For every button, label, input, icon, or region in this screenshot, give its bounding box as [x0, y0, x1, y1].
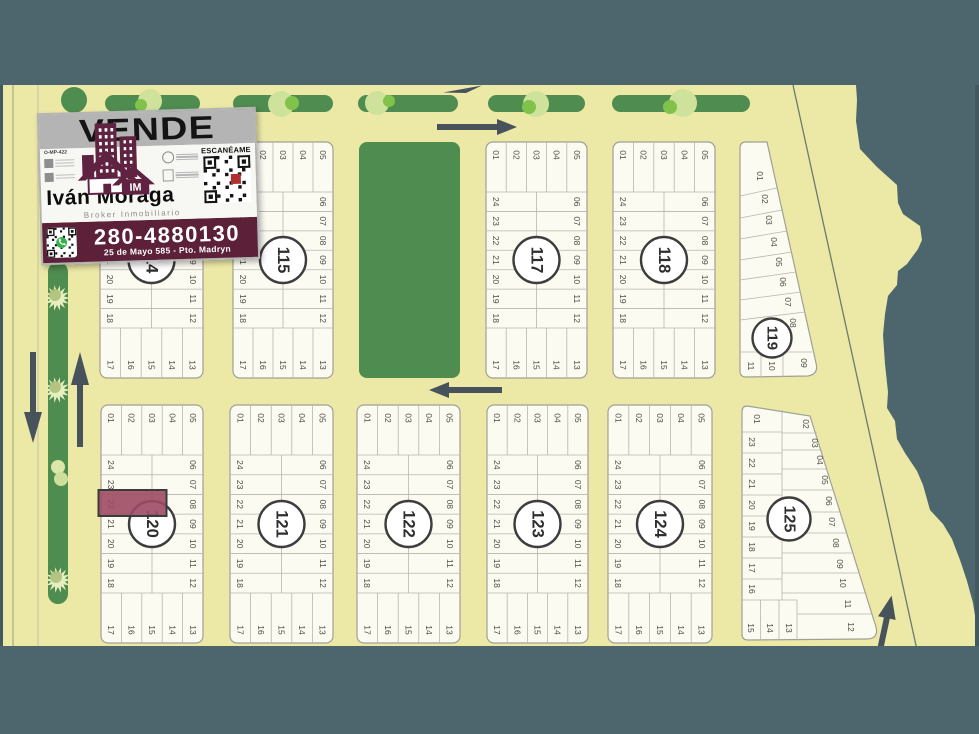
lot-number: 19 — [747, 521, 757, 531]
lot-number: 15 — [533, 625, 543, 635]
lot-number: 23 — [491, 216, 501, 226]
lot-number: 15 — [147, 360, 157, 370]
lot-number: 08 — [318, 236, 328, 246]
lot-number: 03 — [810, 438, 820, 448]
block-number: 121 — [273, 510, 291, 538]
lot-number: 23 — [235, 480, 245, 490]
lot-number: 21 — [235, 519, 245, 529]
block-118: 0117021603150414051324062307220821092010… — [613, 142, 715, 378]
lot-number: 15 — [278, 360, 288, 370]
lot-number: 17 — [618, 360, 628, 370]
lot-number: 06 — [318, 460, 328, 470]
lot-number: 14 — [167, 625, 177, 635]
lot-number: 23 — [492, 480, 502, 490]
lot-number: 18 — [105, 314, 115, 324]
whatsapp-qr-code — [46, 227, 77, 258]
block-122: 0117021603150414051324062307220821092010… — [357, 405, 460, 643]
lot-number: 13 — [445, 625, 455, 635]
lot-number: 13 — [188, 360, 198, 370]
lot-number: 10 — [318, 275, 328, 285]
lot-number: 03 — [659, 150, 669, 160]
lot-number: 22 — [492, 500, 502, 510]
lot-number: 09 — [445, 519, 455, 529]
lot-number: 09 — [572, 255, 582, 265]
lot-number: 17 — [105, 360, 115, 370]
lot-number: 10 — [188, 275, 198, 285]
lot-number: 18 — [492, 578, 502, 588]
lot-number: 09 — [318, 519, 328, 529]
lot-number: 22 — [747, 458, 757, 468]
hedge-tree — [383, 95, 395, 107]
block-number: 117 — [528, 247, 546, 274]
ad-banner: VENDE O-MP-422 IM — [37, 107, 260, 265]
lot-number: 10 — [445, 539, 455, 549]
lot-number: 05 — [188, 413, 198, 423]
traffic-arrow-left — [447, 387, 502, 393]
lot-number: 20 — [491, 275, 501, 285]
lot-number: 16 — [256, 625, 266, 635]
lot-number: 08 — [572, 236, 582, 246]
lot-number: 16 — [126, 360, 136, 370]
lot-number: 07 — [445, 480, 455, 490]
lot-number: 13 — [318, 625, 328, 635]
lot-number: 23 — [362, 480, 372, 490]
block-number: 125 — [781, 506, 798, 533]
agent-role: Broker Inmobiliario — [84, 208, 181, 220]
lot-number: 15 — [659, 360, 669, 370]
association-logo-icon — [44, 159, 53, 168]
cia-logo-icon — [162, 151, 174, 163]
logo-initials: IM — [129, 182, 141, 194]
lot-number: 09 — [799, 358, 809, 368]
lot-number: 08 — [831, 538, 841, 548]
lot-number: 23 — [106, 480, 116, 490]
lot-number: 11 — [572, 294, 582, 303]
lot-number: 19 — [491, 294, 501, 304]
association-logos-left — [44, 157, 75, 185]
lot-number: 05 — [318, 413, 328, 423]
lot-number: 19 — [613, 559, 623, 569]
lot-number: 15 — [277, 625, 287, 635]
lot-number: 20 — [238, 275, 248, 285]
lot-number: 21 — [747, 479, 757, 489]
lot-number: 16 — [258, 360, 268, 370]
ad-panel: O-MP-422 IM — [40, 143, 257, 223]
lot-number: 12 — [697, 578, 707, 588]
lot-number: 14 — [679, 360, 689, 370]
lot-number: 21 — [618, 255, 628, 265]
hedge-tree — [522, 100, 536, 114]
lot-number: 12 — [188, 314, 198, 324]
lot-number: 22 — [613, 500, 623, 510]
ref-code: O-MP-422 — [44, 149, 67, 156]
lot-number: 05 — [820, 475, 830, 485]
traffic-arrow-up — [77, 383, 83, 447]
lot-number: 10 — [697, 539, 707, 549]
lot-number: 06 — [824, 496, 834, 506]
contact-bar: 280-4880130 25 de Mayo 585 - Pto. Madryn — [42, 217, 258, 263]
lot-number: 23 — [747, 437, 757, 447]
lot-number: 21 — [362, 519, 372, 529]
lot-number: 13 — [573, 625, 583, 635]
lot-number: 14 — [167, 360, 177, 370]
lot-number: 14 — [553, 625, 563, 635]
lot-number: 19 — [618, 294, 628, 304]
lot-number: 18 — [238, 314, 248, 324]
lot-number: 02 — [383, 413, 393, 423]
lot-map-flyer: 0117021603150414051324062307220821092010… — [0, 0, 979, 734]
lot-number: 17 — [362, 625, 372, 635]
lot-number: 17 — [106, 625, 116, 635]
lot-number: 19 — [492, 559, 502, 569]
map-edge — [0, 85, 3, 646]
lot-number: 24 — [235, 460, 245, 470]
block-number: 118 — [655, 247, 673, 274]
association-logo-icon — [45, 172, 54, 181]
lot-number: 22 — [491, 236, 501, 246]
lot-number: 12 — [846, 622, 856, 632]
lot-number: 17 — [492, 625, 502, 635]
lot-number: 13 — [700, 360, 710, 370]
lot-number: 02 — [127, 413, 137, 423]
lot-number: 16 — [127, 625, 137, 635]
lot-number: 02 — [258, 150, 268, 160]
lot-number: 07 — [572, 216, 582, 226]
lot-number: 05 — [318, 150, 328, 160]
lot-number: 16 — [511, 360, 521, 370]
lot-number: 20 — [105, 275, 115, 285]
lot-number: 21 — [492, 519, 502, 529]
lot-number: 09 — [700, 255, 710, 265]
block-number: 123 — [529, 510, 547, 538]
lot-number: 13 — [318, 360, 328, 370]
lot-number: 21 — [491, 255, 501, 265]
lot-number: 15 — [404, 625, 414, 635]
lot-number: 06 — [445, 460, 455, 470]
lot-number: 03 — [655, 413, 665, 423]
lot-number: 20 — [362, 539, 372, 549]
lot-number: 01 — [618, 150, 628, 160]
lot-number: 19 — [106, 559, 116, 569]
lot-number: 02 — [256, 413, 266, 423]
traffic-arrow-down — [30, 352, 36, 414]
block-121: 0117021603150414051324062307220821092010… — [230, 405, 333, 643]
lot-number: 08 — [697, 500, 707, 510]
lot-number: 08 — [700, 236, 710, 246]
avenue-median — [48, 262, 68, 604]
lot-number: 12 — [188, 578, 198, 588]
lot-number: 03 — [532, 150, 542, 160]
block-number: 119 — [764, 326, 781, 350]
lot-number: 19 — [362, 559, 372, 569]
lot-number: 21 — [106, 519, 116, 529]
lot-number: 20 — [106, 539, 116, 549]
lot-number: 04 — [552, 150, 562, 160]
traffic-arrow-right — [437, 124, 497, 130]
lot-number: 10 — [318, 539, 328, 549]
block-number: 115 — [274, 247, 292, 274]
lot-number: 07 — [318, 480, 328, 490]
association-logos-center — [162, 151, 199, 188]
map-edge — [975, 85, 979, 646]
hedge-tree — [663, 100, 677, 114]
lot-number: 06 — [700, 197, 710, 207]
lot-number: 09 — [697, 519, 707, 529]
lot-number: 01 — [235, 413, 245, 423]
lot-number: 12 — [572, 314, 582, 324]
block-124: 0117021603150414051324062307220821092010… — [608, 405, 712, 643]
lot-number: 11 — [445, 559, 455, 568]
median-shrub — [49, 289, 61, 301]
lot-number: 17 — [491, 360, 501, 370]
lot-number: 16 — [639, 360, 649, 370]
lot-number: 05 — [700, 150, 710, 160]
lot-number: 12 — [318, 578, 328, 588]
lot-number: 05 — [445, 413, 455, 423]
lot-number: 02 — [512, 413, 522, 423]
scan-me-block: ESCANÉAME — [200, 145, 254, 204]
lot-number: 04 — [815, 455, 825, 465]
lot-number: 24 — [106, 460, 116, 470]
lot-number: 11 — [188, 559, 198, 568]
lot-number: 02 — [760, 194, 770, 204]
lot-number: 19 — [105, 294, 115, 304]
lot-number: 02 — [639, 150, 649, 160]
lot-number: 14 — [424, 625, 434, 635]
lot-number: 09 — [573, 519, 583, 529]
lot-number: 11 — [700, 294, 710, 303]
lot-number: 11 — [318, 294, 328, 303]
lot-number: 24 — [491, 197, 501, 207]
lot-number: 07 — [783, 297, 793, 307]
lot-number: 24 — [618, 197, 628, 207]
lot-number: 04 — [553, 413, 563, 423]
lot-number: 21 — [613, 519, 623, 529]
lot-number: 18 — [613, 578, 623, 588]
lot-number: 18 — [618, 314, 628, 324]
lot-number: 13 — [784, 623, 794, 633]
lot-number: 08 — [573, 500, 583, 510]
median-shrub — [51, 460, 65, 474]
median-shrub — [50, 571, 62, 583]
lot-number: 05 — [573, 413, 583, 423]
lot-number: 17 — [238, 360, 248, 370]
lot-number: 18 — [747, 542, 757, 552]
lot-number: 01 — [491, 150, 501, 160]
lot-number: 03 — [147, 413, 157, 423]
lot-number: 06 — [318, 197, 328, 207]
lot-number: 08 — [188, 500, 198, 510]
lot-number: 12 — [445, 578, 455, 588]
lot-number: 20 — [747, 500, 757, 510]
lot-number: 03 — [533, 413, 543, 423]
lot-number: 16 — [747, 584, 757, 594]
scan-qr-code — [203, 155, 251, 203]
lot-number: 09 — [318, 255, 328, 265]
lot-number: 15 — [532, 360, 542, 370]
lot-number: 16 — [512, 625, 522, 635]
lot-number: 11 — [843, 600, 853, 609]
lot-number: 23 — [613, 480, 623, 490]
lot-number: 23 — [618, 216, 628, 226]
lot-number: 20 — [235, 539, 245, 549]
lot-number: 12 — [700, 314, 710, 324]
lot-number: 07 — [188, 480, 198, 490]
lot-number: 17 — [613, 625, 623, 635]
lot-number: 15 — [655, 625, 665, 635]
median-shrub — [49, 381, 61, 393]
lot-number: 12 — [573, 578, 583, 588]
scan-me-label: ESCANÉAME — [200, 145, 252, 156]
block-123: 0117021603150414051324062307220821092010… — [487, 405, 588, 643]
lot-number: 10 — [838, 578, 848, 588]
lot-number: 14 — [676, 625, 686, 635]
agent-logo: IM — [75, 120, 156, 210]
lot-number: 04 — [298, 150, 308, 160]
lot-number: 14 — [298, 360, 308, 370]
contact-info: 280-4880130 25 de Mayo 585 - Pto. Madryn — [80, 221, 254, 257]
lot-number: 15 — [746, 623, 756, 633]
lot-number: 03 — [764, 215, 774, 225]
lot-number: 20 — [618, 275, 628, 285]
lot-number: 14 — [552, 360, 562, 370]
lot-number: 18 — [491, 314, 501, 324]
lot-number: 01 — [106, 413, 116, 423]
lot-number: 20 — [613, 539, 623, 549]
qr-center-logo — [230, 174, 240, 184]
lot-number: 17 — [235, 625, 245, 635]
lot-number: 10 — [188, 539, 198, 549]
lot-number: 04 — [297, 413, 307, 423]
lot-number: 08 — [318, 500, 328, 510]
lot-number: 11 — [697, 559, 707, 568]
lot-number: 17 — [747, 563, 757, 573]
lot-number: 01 — [362, 413, 372, 423]
hedge-tree — [285, 96, 299, 110]
lot-number: 13 — [188, 625, 198, 635]
lot-number: 13 — [697, 625, 707, 635]
bottom-letterbox — [0, 646, 979, 734]
lot-number: 16 — [634, 625, 644, 635]
lot-number: 01 — [492, 413, 502, 423]
lot-number: 18 — [362, 578, 372, 588]
lot-number: 11 — [318, 559, 328, 568]
lot-number: 05 — [572, 150, 582, 160]
lot-number: 04 — [424, 413, 434, 423]
lot-number: 06 — [188, 460, 198, 470]
block-number: 124 — [651, 510, 669, 538]
lot-number: 14 — [765, 623, 775, 633]
lot-number: 06 — [697, 460, 707, 470]
top-letterbox — [0, 0, 979, 85]
lot-number: 01 — [755, 171, 765, 181]
lot-number: 03 — [404, 413, 414, 423]
lot-number: 12 — [318, 314, 328, 324]
lot-number: 08 — [445, 500, 455, 510]
lot-number: 16 — [383, 625, 393, 635]
block-number: 122 — [400, 510, 418, 538]
block-120: 0117021603150414051324062307220821092010… — [101, 405, 203, 643]
lot-number: 05 — [697, 413, 707, 423]
lot-number: 20 — [492, 539, 502, 549]
lot-number: 04 — [679, 150, 689, 160]
lot-number: 22 — [618, 236, 628, 246]
lot-number: 22 — [362, 500, 372, 510]
lot-number: 18 — [106, 578, 116, 588]
college-logo-icon — [163, 169, 174, 181]
lot-number: 03 — [277, 413, 287, 423]
highlighted-lot-22 — [99, 490, 167, 516]
corner-tree — [61, 87, 87, 113]
central-park — [359, 142, 460, 378]
lot-number: 09 — [188, 519, 198, 529]
lot-number: 06 — [573, 460, 583, 470]
lot-number: 02 — [511, 150, 521, 160]
lot-number: 09 — [835, 559, 845, 569]
lot-number: 24 — [362, 460, 372, 470]
lot-number: 13 — [572, 360, 582, 370]
lot-number: 10 — [572, 275, 582, 285]
lot-number: 18 — [235, 578, 245, 588]
lot-number: 07 — [573, 480, 583, 490]
lot-number: 08 — [788, 318, 798, 328]
lot-number: 05 — [774, 257, 784, 267]
lot-number: 06 — [572, 197, 582, 207]
lot-number: 11 — [188, 294, 198, 303]
lot-number: 24 — [613, 460, 623, 470]
lot-number: 07 — [827, 517, 837, 527]
lot-number: 06 — [778, 277, 788, 287]
lot-number: 22 — [235, 500, 245, 510]
lot-number: 03 — [278, 150, 288, 160]
lot-number: 14 — [297, 625, 307, 635]
lot-number: 04 — [676, 413, 686, 423]
block-117: 0117021603150414051324062307220821092010… — [486, 142, 587, 378]
lot-number: 19 — [238, 294, 248, 304]
lot-number: 02 — [634, 413, 644, 423]
median-shrub — [54, 472, 68, 486]
lot-number: 04 — [769, 237, 779, 247]
lot-number: 24 — [492, 460, 502, 470]
lot-number: 11 — [746, 362, 756, 371]
lot-number: 10 — [573, 539, 583, 549]
lot-number: 07 — [697, 480, 707, 490]
lot-number: 10 — [767, 361, 777, 371]
lot-number: 04 — [167, 413, 177, 423]
lot-number: 01 — [752, 414, 762, 424]
lot-number: 11 — [573, 559, 583, 568]
lot-number: 15 — [147, 625, 157, 635]
lot-number: 10 — [700, 275, 710, 285]
lot-number: 07 — [318, 216, 328, 226]
lot-number: 02 — [801, 419, 811, 429]
lot-number: 01 — [613, 413, 623, 423]
lot-number: 07 — [700, 216, 710, 226]
lot-number: 19 — [235, 559, 245, 569]
